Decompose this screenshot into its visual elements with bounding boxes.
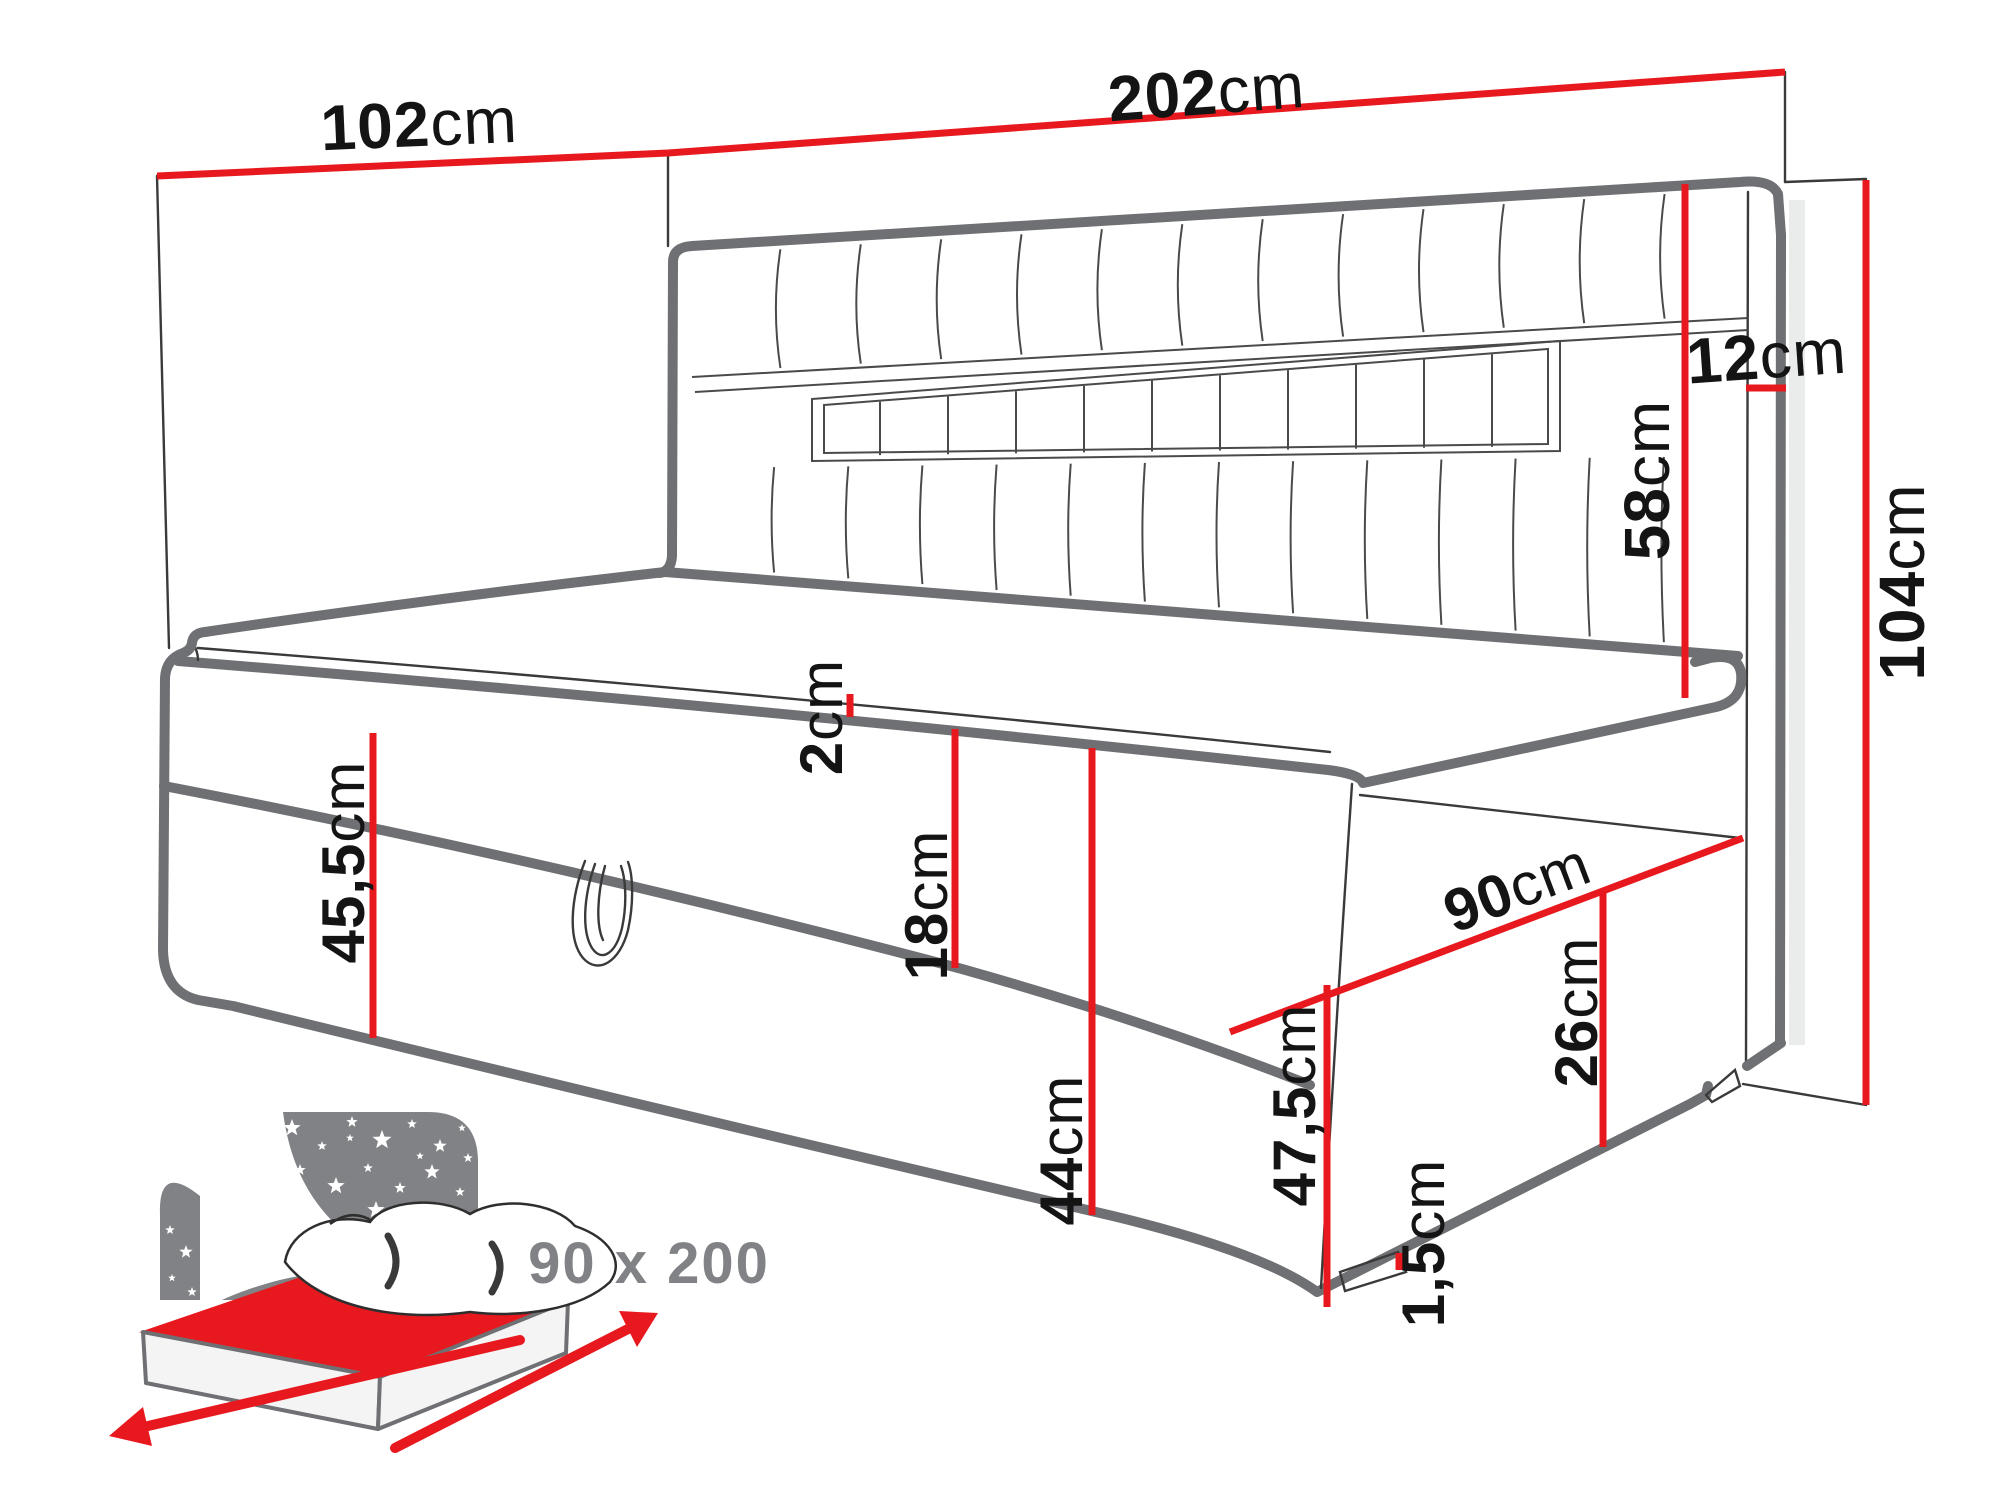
panel-division-line: [920, 465, 923, 584]
daybed-dimension-diagram: 102cm 202cm 12cm 58cm 104cm 45,5cm 2cm 1…: [0, 0, 2000, 1500]
panel-division-line: [937, 239, 942, 359]
dimension-label-2: 2cm: [788, 659, 855, 775]
dimension-label-18: 18cm: [893, 830, 960, 981]
panel-division-line: [1217, 462, 1220, 607]
panel-division-line: [1142, 463, 1145, 602]
left-wall-edge-line: [157, 176, 169, 648]
panel-division-line: [1365, 460, 1368, 619]
dimension-label-12: 12cm: [1684, 315, 1849, 398]
panel-division-line: [1513, 459, 1516, 631]
dimension-label-45-5: 45,5cm: [310, 761, 377, 964]
mattress-outline: [178, 657, 1741, 783]
dimension-label-1-5: 1,5cm: [1390, 1159, 1457, 1327]
panel-division-line: [776, 249, 781, 368]
seat-back-line: [205, 572, 1738, 656]
panel-division-line: [1291, 461, 1294, 613]
panel-division-line: [1419, 209, 1424, 332]
panel-division-line: [1660, 194, 1665, 319]
panel-division-line: [1258, 219, 1263, 341]
panel-division-line: [772, 467, 775, 572]
dimension-label-47-5: 47,5cm: [1261, 1004, 1328, 1207]
night-sky-panel-left: [160, 1183, 200, 1300]
dimension-label-26: 26cm: [1543, 937, 1610, 1088]
mattress: [178, 640, 1741, 783]
panel-division-line: [1580, 199, 1585, 323]
dimension-label-44: 44cm: [1028, 1075, 1095, 1226]
dimension-label-104: 104cm: [1866, 483, 1938, 680]
headboard-recess-frame-inner: [824, 349, 1548, 453]
dimension-label-90: 90cm: [1435, 830, 1600, 946]
panel-division-line: [1097, 229, 1102, 350]
mattress-size-icon: 90 x 200: [109, 1112, 770, 1448]
dimension-diagram-page: 102cm 202cm 12cm 58cm 104cm 45,5cm 2cm 1…: [0, 0, 2000, 1500]
mattress-top-lip-line: [198, 648, 1330, 752]
right-leg-edge: [1747, 1043, 1781, 1066]
panel-division-line: [1178, 224, 1183, 345]
panel-division-line: [856, 244, 861, 363]
dimension-label-58: 58cm: [1611, 400, 1683, 561]
panel-division-line: [1017, 234, 1022, 354]
dimension-label-202: 202cm: [1105, 49, 1307, 135]
headboard-recess-frame: [812, 341, 1560, 461]
floor-extension-line: [1743, 1084, 1866, 1105]
base-right-top-edge: [1360, 795, 1740, 838]
panel-division-line: [1439, 460, 1442, 625]
panel-division-line: [1499, 204, 1504, 328]
panel-division-line: [846, 466, 849, 578]
width-arrow-head-icon: [109, 1407, 152, 1446]
dimension-label-102: 102cm: [319, 84, 519, 165]
panel-division-line: [1068, 464, 1071, 596]
size-caption: 90 x 200: [528, 1231, 770, 1296]
panel-division-line: [1339, 214, 1344, 337]
top-right-extension-line: [1785, 179, 1866, 182]
panel-division-line: [1587, 458, 1590, 637]
panel-division-line: [994, 465, 997, 590]
headboard: [205, 182, 1781, 1063]
headboard-shelf-lip-line: [695, 330, 1748, 392]
